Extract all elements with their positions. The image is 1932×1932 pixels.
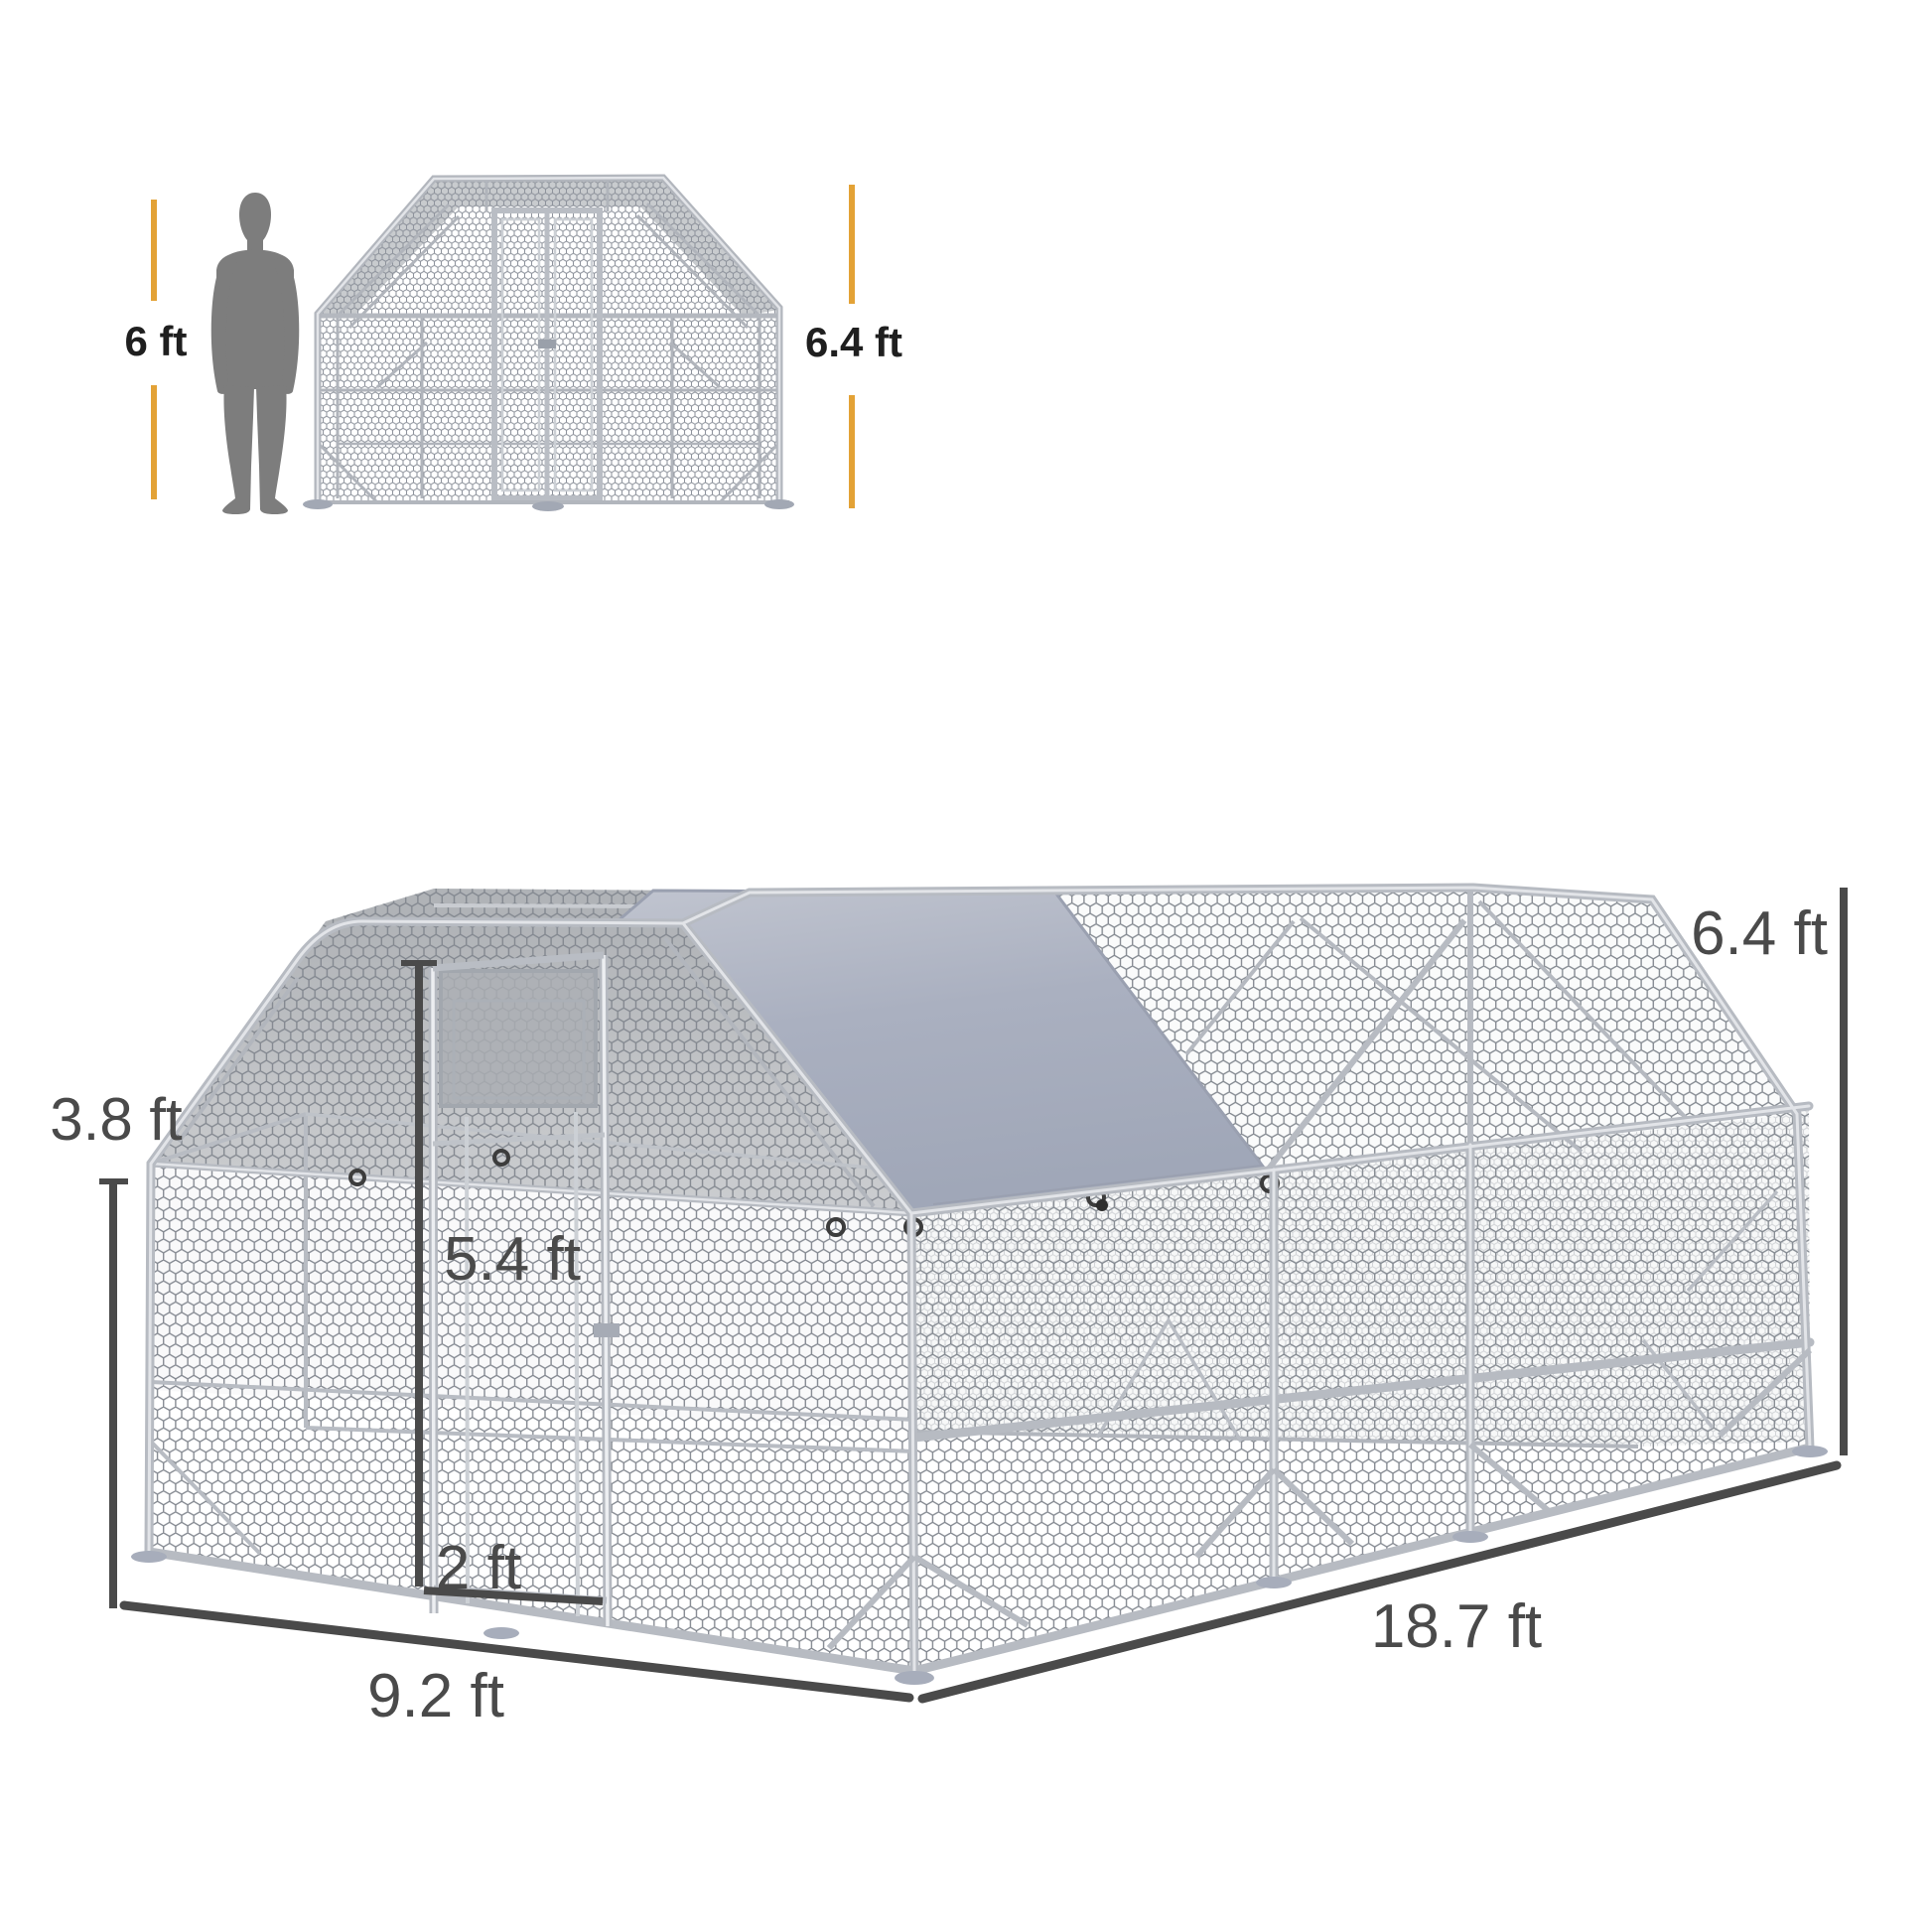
svg-text:9.2 ft: 9.2 ft bbox=[367, 1662, 504, 1730]
svg-text:2 ft: 2 ft bbox=[436, 1534, 521, 1602]
svg-text:3.8 ft: 3.8 ft bbox=[50, 1086, 183, 1153]
svg-text:6 ft: 6 ft bbox=[125, 318, 188, 364]
svg-text:6.4 ft: 6.4 ft bbox=[805, 319, 902, 365]
svg-text:18.7 ft: 18.7 ft bbox=[1371, 1592, 1542, 1661]
svg-text:6.4 ft: 6.4 ft bbox=[1691, 899, 1828, 968]
svg-text:5.4 ft: 5.4 ft bbox=[444, 1225, 581, 1294]
